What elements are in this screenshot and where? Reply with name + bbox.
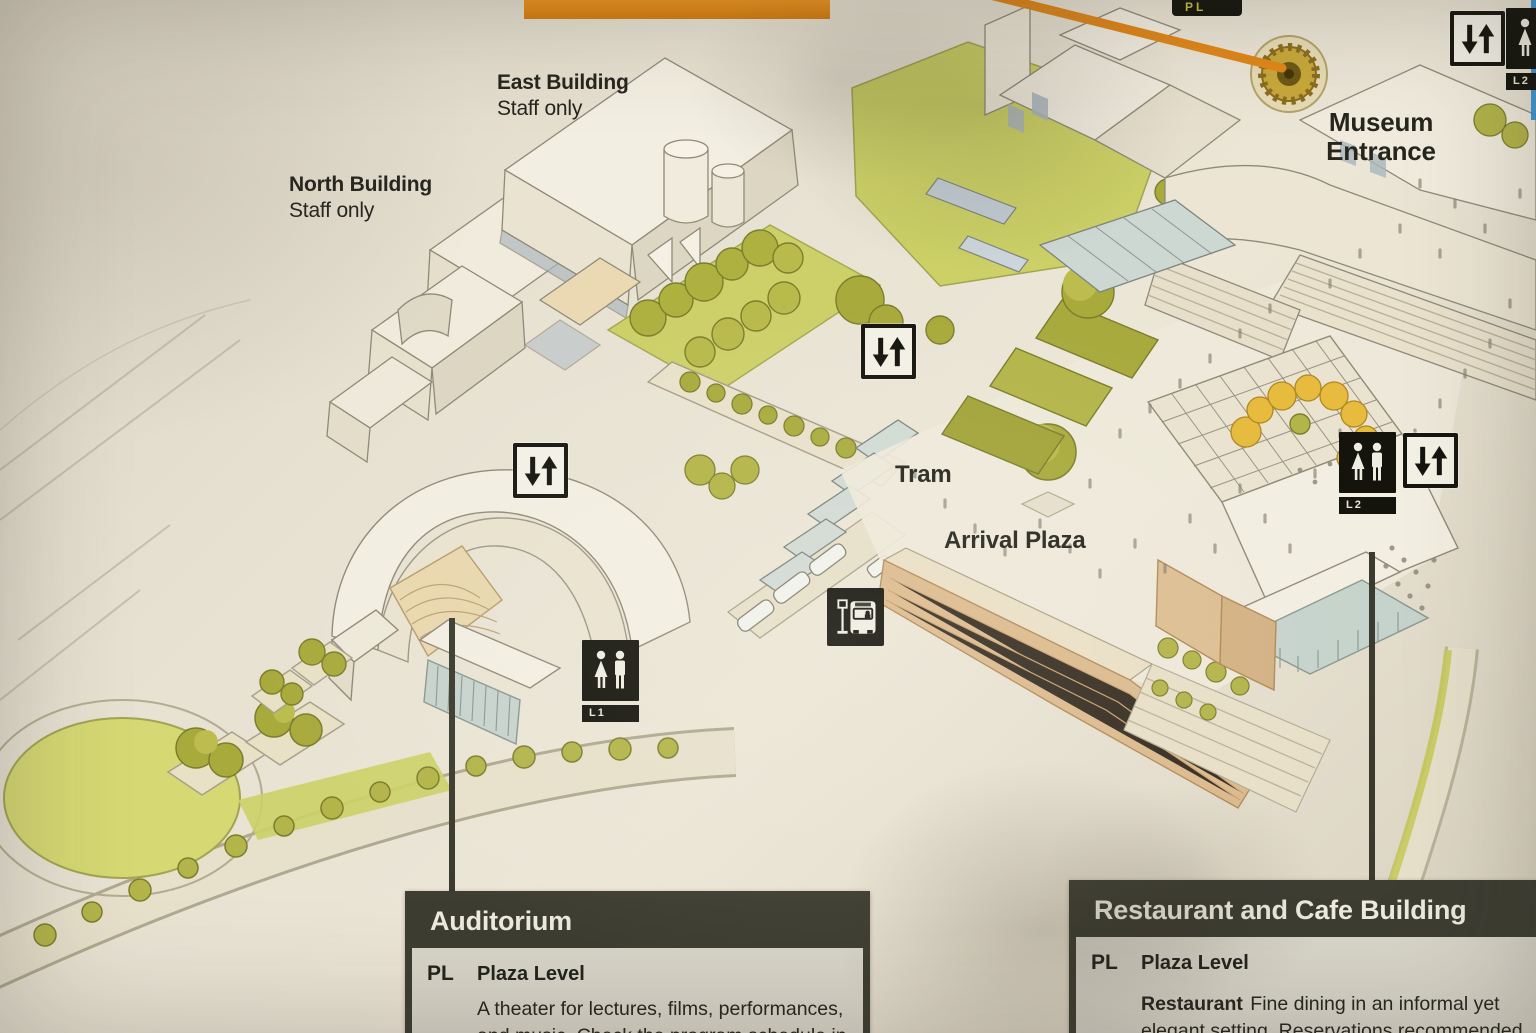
description-line: elegant setting. Reservations recommende…: [1141, 1018, 1528, 1033]
east-building-name: East Building: [497, 71, 629, 94]
up-down-arrows: [521, 451, 561, 491]
north-building-name: North Building: [289, 173, 432, 196]
east-building-label: East Building Staff only: [497, 70, 629, 121]
arrival-plaza-label: Arrival Plaza: [944, 526, 1085, 555]
restaurant-callout-line: [1369, 552, 1375, 882]
restroom-figures: [582, 640, 639, 701]
restaurant-info-title: Restaurant and Cafe Building: [1076, 887, 1536, 937]
fountain: [1251, 36, 1327, 112]
elevator-icon: [513, 443, 568, 498]
auditorium-callout-line: [449, 618, 455, 893]
auditorium-info-body: PL Plaza Level A theater for lectures, f…: [412, 948, 863, 1033]
auditorium-description: A theater for lectures, films, performan…: [477, 996, 849, 1033]
museum-entrance-label: Museum Entrance: [1318, 108, 1444, 165]
tram-label: Tram: [895, 460, 952, 489]
elevator-icon: [1450, 11, 1505, 66]
restroom-level-badge: L2: [1506, 73, 1536, 90]
restaurant-info-body: PL Plaza Level RestaurantFine dining in …: [1076, 937, 1536, 1033]
description-line: and music. Check the program schedule in: [477, 1023, 849, 1033]
up-down-arrows: [1458, 19, 1498, 59]
restroom-icon: L2: [1506, 8, 1536, 90]
auditorium-info-box: Auditorium PL Plaza Level A theater for …: [405, 891, 870, 1033]
up-down-arrows: [1411, 441, 1451, 481]
level-name: Plaza Level: [477, 963, 849, 986]
east-building-note: Staff only: [497, 96, 629, 122]
restroom-figures: [1339, 432, 1396, 493]
north-building-note: Staff only: [289, 198, 432, 224]
museum-entrance-line2: Entrance: [1318, 137, 1444, 166]
sketch-roads: [0, 300, 250, 700]
auditorium-info-title: Auditorium: [412, 898, 863, 948]
north-building-label: North Building Staff only: [289, 172, 432, 223]
elevator-icon: [861, 324, 916, 379]
description-line: RestaurantFine dining in an informal yet: [1141, 991, 1528, 1018]
elevator-icon: [1403, 433, 1458, 488]
museum-entrance-line1: Museum: [1318, 108, 1444, 137]
bus-stop-icon: [827, 588, 884, 646]
route-highlight-bar: [524, 0, 830, 19]
restroom-icon: L1: [582, 640, 639, 722]
restroom-level-badge: L1: [582, 705, 639, 722]
restroom-figures: [1506, 8, 1536, 69]
plaza-level-route-tag: PL: [1172, 0, 1242, 16]
level-code: PL: [1091, 951, 1141, 975]
restaurant-info-box: Restaurant and Cafe Building PL Plaza Le…: [1069, 880, 1536, 1033]
restroom-level-badge: L2: [1339, 497, 1396, 514]
level-code: PL: [427, 962, 477, 986]
restaurant-description: RestaurantFine dining in an informal yet…: [1141, 991, 1528, 1033]
restaurant-item-label: Restaurant: [1141, 993, 1243, 1015]
description-line: A theater for lectures, films, performan…: [477, 996, 849, 1023]
description-text: Fine dining in an informal yet: [1250, 993, 1499, 1015]
map-illustration: [0, 0, 1536, 1033]
campus-map-photo: PL East Building Staff only North Buildi…: [0, 0, 1536, 1033]
level-name: Plaza Level: [1141, 952, 1523, 975]
restroom-icon: L2: [1339, 432, 1396, 514]
up-down-arrows: [869, 332, 909, 372]
